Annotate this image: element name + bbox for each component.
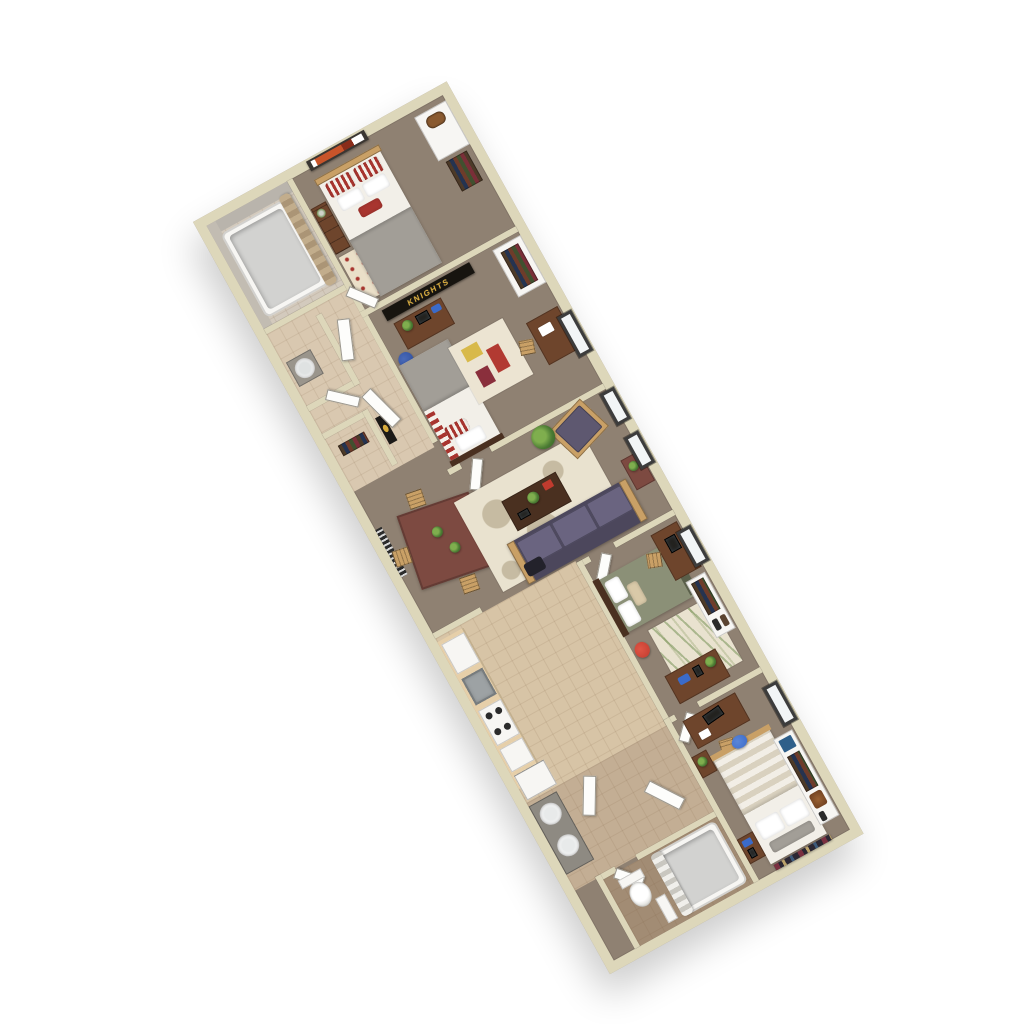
door-leaf (583, 776, 597, 816)
window-living-1 (600, 387, 631, 426)
desk-chair (646, 552, 663, 569)
burner (484, 711, 494, 721)
rug-block (461, 342, 484, 363)
wall (447, 463, 462, 475)
rug-block (475, 365, 496, 388)
burner (503, 722, 513, 732)
render-canvas: KNIGHTS (0, 0, 1024, 1024)
desk-chair (518, 338, 536, 356)
burner (494, 706, 504, 716)
burner (493, 727, 503, 737)
dining-chair (459, 573, 481, 595)
window-bedroom4 (763, 681, 798, 727)
door-leaf-bedroom2 (469, 458, 483, 491)
floor-plan: KNIGHTS (193, 81, 864, 974)
